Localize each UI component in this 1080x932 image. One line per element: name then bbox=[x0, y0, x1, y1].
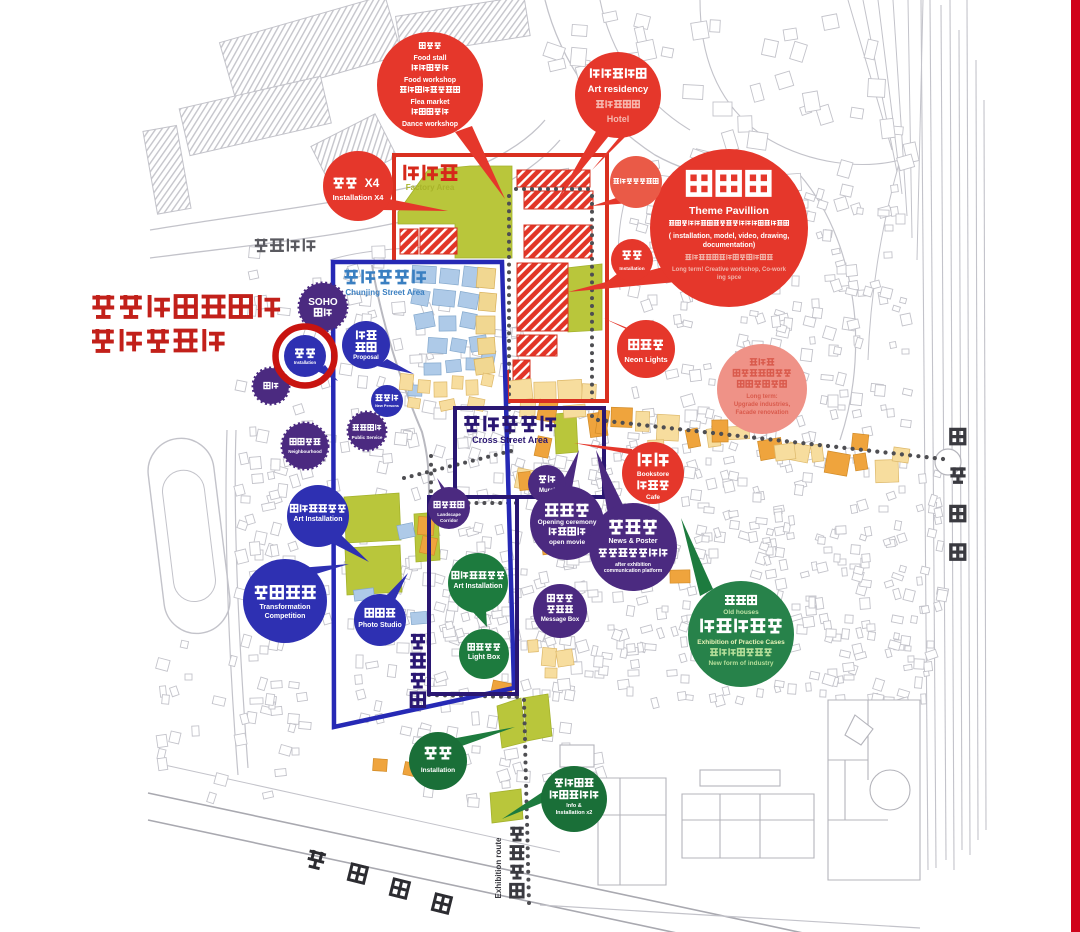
svg-text:Exhibition of Practice Cases: Exhibition of Practice Cases bbox=[697, 639, 785, 646]
svg-text:Message Box: Message Box bbox=[541, 617, 580, 623]
svg-text:X4: X4 bbox=[365, 176, 380, 190]
svg-text:Long term:: Long term: bbox=[746, 394, 777, 400]
svg-text:Installation: Installation bbox=[294, 360, 317, 365]
svg-text:Cross Street Area: Cross Street Area bbox=[472, 435, 549, 445]
svg-text:Competition: Competition bbox=[265, 613, 306, 620]
svg-text:Long term! Creative workshop,: Long term! Creative workshop, Co-work bbox=[672, 267, 787, 273]
svg-text:Corridor: Corridor bbox=[440, 518, 458, 523]
svg-text:Installation X4: Installation X4 bbox=[333, 193, 385, 202]
svg-text:New form of industry: New form of industry bbox=[708, 660, 773, 667]
svg-text:Bookstore: Bookstore bbox=[637, 471, 670, 478]
svg-text:Hotel: Hotel bbox=[607, 114, 630, 124]
svg-text:Landscape: Landscape bbox=[437, 512, 461, 517]
svg-text:Art residency: Art residency bbox=[588, 84, 649, 95]
svg-text:SOHO: SOHO bbox=[308, 297, 338, 308]
svg-text:communication platform: communication platform bbox=[604, 568, 663, 574]
svg-text:Installation: Installation bbox=[421, 767, 455, 774]
svg-text:Opening ceremony: Opening ceremony bbox=[538, 519, 597, 526]
svg-text:Light Box: Light Box bbox=[468, 654, 500, 661]
svg-text:Installation x2: Installation x2 bbox=[556, 810, 593, 816]
svg-text:News & Poster: News & Poster bbox=[608, 538, 657, 545]
svg-text:Proposal: Proposal bbox=[353, 355, 379, 361]
svg-text:Art Installation: Art Installation bbox=[453, 583, 502, 590]
svg-text:Info &: Info & bbox=[566, 803, 582, 809]
svg-text:Factory Area: Factory Area bbox=[406, 183, 455, 192]
svg-text:documentation): documentation) bbox=[703, 242, 756, 249]
svg-text:Transformation: Transformation bbox=[260, 604, 311, 611]
svg-text:Upgrade industries,: Upgrade industries, bbox=[734, 402, 791, 408]
svg-text:Neighbourhood: Neighbourhood bbox=[288, 449, 322, 454]
svg-text:Installation: Installation bbox=[619, 266, 644, 272]
svg-text:ing spce: ing spce bbox=[717, 275, 742, 281]
svg-text:Food stall: Food stall bbox=[413, 55, 446, 62]
svg-text:Old houses: Old houses bbox=[723, 609, 759, 616]
svg-text:Chunjing Street Area: Chunjing Street Area bbox=[345, 288, 425, 297]
svg-text:Food workshop: Food workshop bbox=[404, 77, 456, 84]
svg-text:New Persons: New Persons bbox=[375, 404, 399, 408]
svg-text:open movie: open movie bbox=[549, 539, 586, 546]
svg-text:Dance workshop: Dance workshop bbox=[402, 121, 458, 128]
svg-text:Exhibition route: Exhibition route bbox=[494, 837, 503, 898]
svg-text:Cafe: Cafe bbox=[646, 494, 660, 501]
svg-text:Flea market: Flea market bbox=[411, 99, 451, 106]
svg-text:Public Service: Public Service bbox=[352, 435, 383, 440]
svg-text:Theme Pavillion: Theme Pavillion bbox=[689, 205, 769, 217]
svg-text:Facade renovation: Facade renovation bbox=[735, 410, 788, 416]
svg-text:Art Installation: Art Installation bbox=[293, 516, 342, 523]
svg-text:( installation, model, video,: ( installation, model, video, drawing, bbox=[669, 233, 790, 240]
svg-text:Photo Studio: Photo Studio bbox=[358, 622, 402, 629]
svg-text:Neon Lights: Neon Lights bbox=[624, 355, 667, 364]
